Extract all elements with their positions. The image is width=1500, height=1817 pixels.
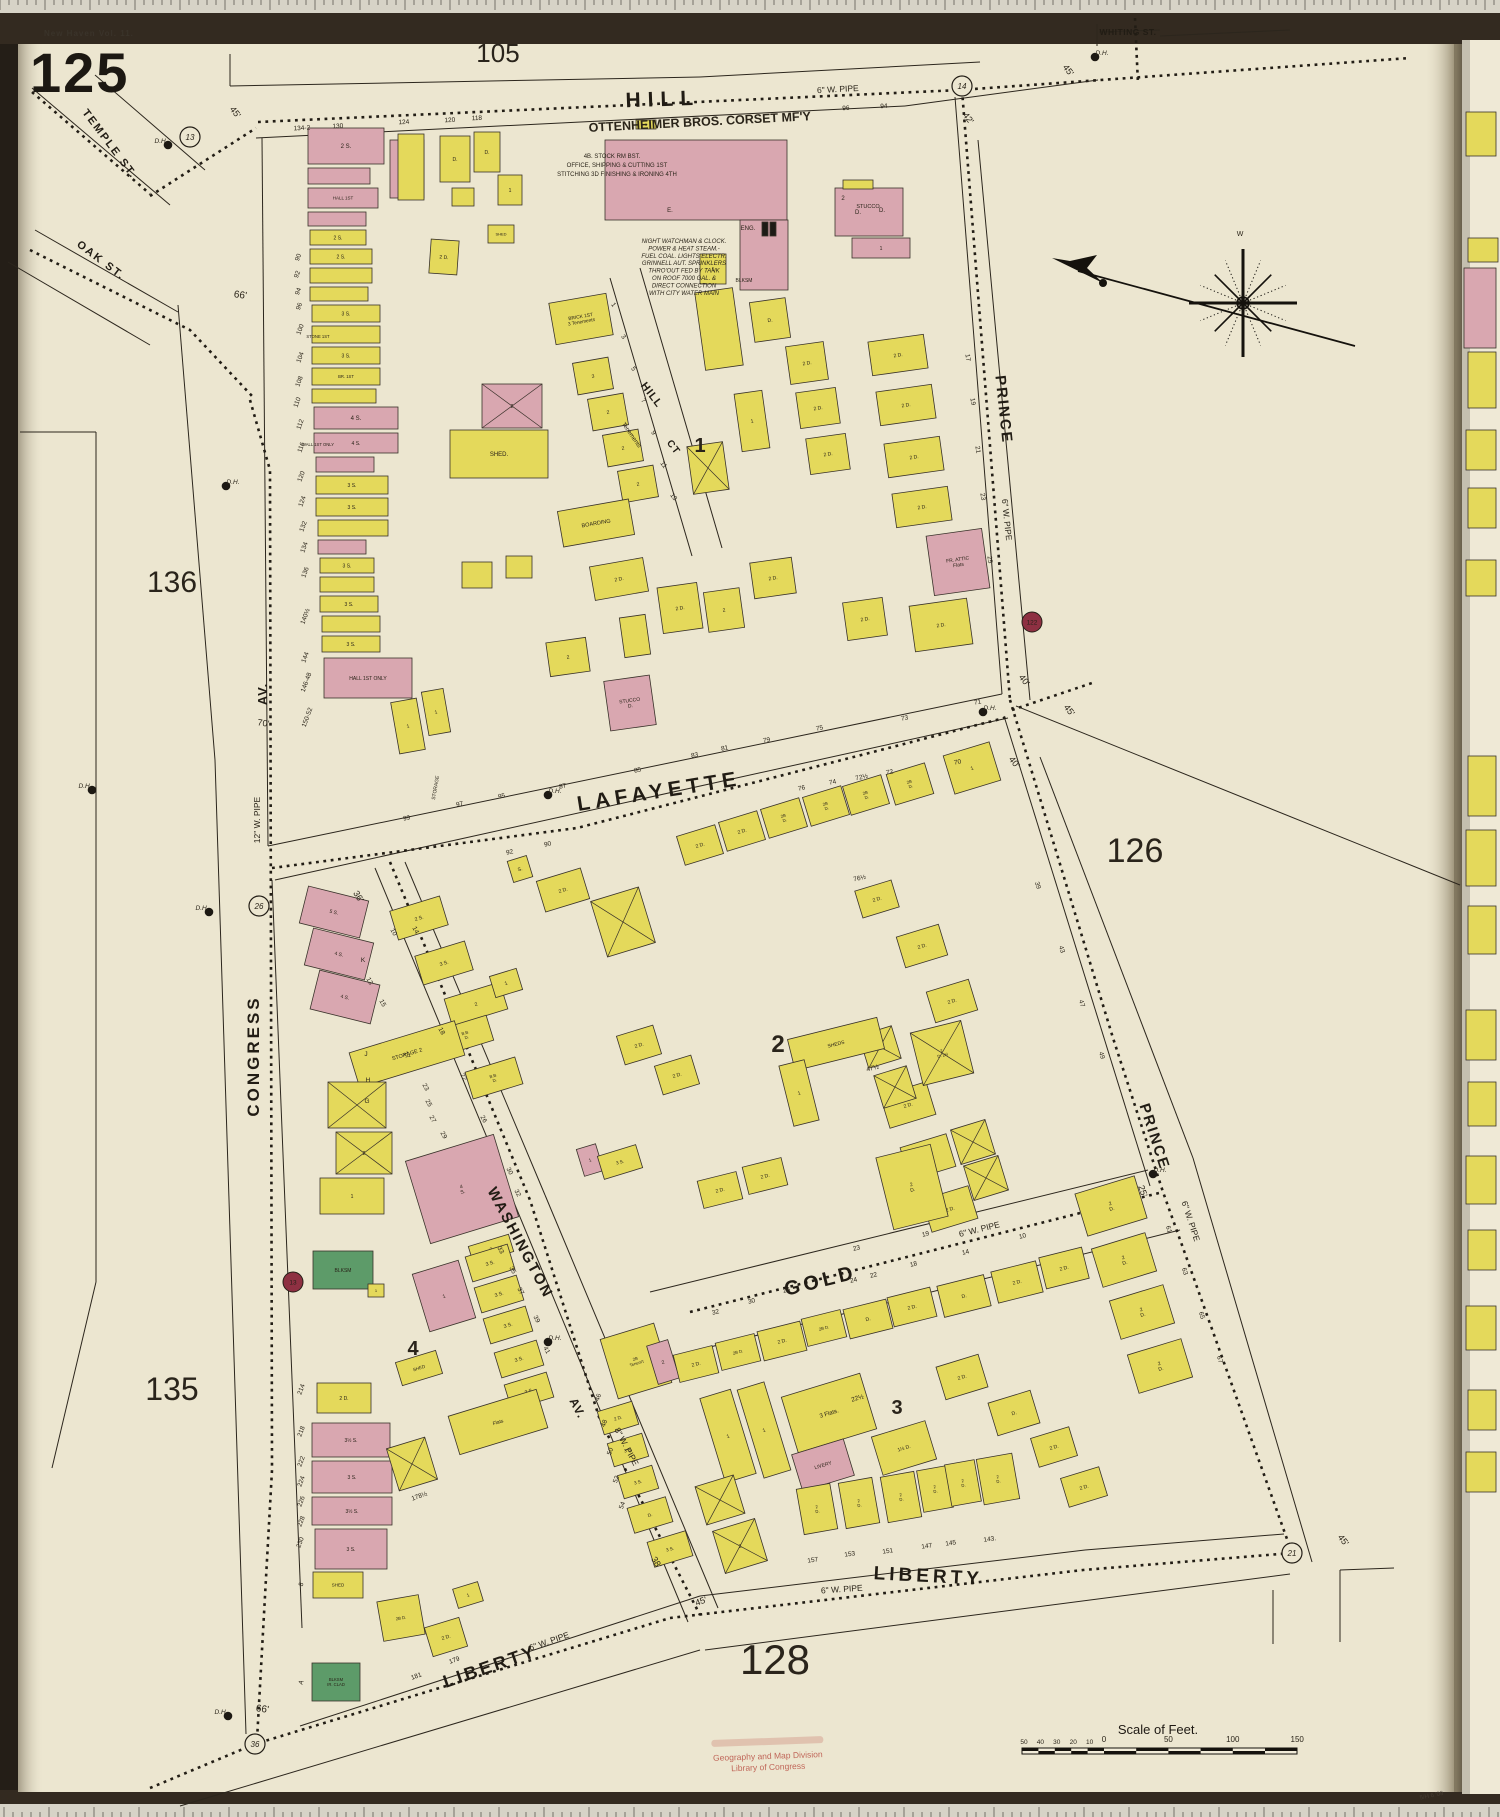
building: 3 S. — [320, 596, 378, 612]
building: 2 D. — [786, 342, 829, 385]
building-label: 2 D. — [823, 451, 833, 458]
building-footprint — [318, 540, 366, 554]
building: 3½ S. — [312, 1497, 392, 1525]
building — [770, 222, 776, 236]
factory-note-line: NIGHT WATCHMAN & CLOCK. — [642, 239, 727, 245]
building — [310, 287, 368, 301]
building-label: 3 S. — [342, 311, 351, 317]
building: 2 — [546, 637, 590, 676]
adjacent-sheet-number-105: 105 — [476, 38, 519, 68]
building-label: 2 S. — [334, 235, 343, 241]
map-annotation: WALL 1ST ONLY — [302, 442, 334, 447]
page-left-curl-shade — [18, 44, 44, 1792]
building: 2 D. — [892, 486, 952, 527]
building: D. — [440, 136, 470, 182]
double-hydrant-label: D.H. — [196, 905, 209, 912]
building-label: 2 D. — [901, 402, 911, 409]
building-label: HALL 1ST ONLY — [349, 676, 387, 682]
building-label: 1 — [509, 188, 512, 194]
building-label: 2 D. — [439, 254, 449, 261]
house-number: 96 — [842, 105, 850, 112]
building: 1 — [852, 238, 910, 258]
building: BLKSM — [313, 1251, 373, 1289]
building — [452, 188, 474, 206]
building: 2 — [482, 384, 542, 428]
scale-bar-segment — [1055, 1748, 1071, 1751]
building-label: 2 D. — [339, 1396, 348, 1402]
factory-note-line: POWER & HEAT STEAM.- — [648, 246, 720, 252]
scale-bar-segment — [1022, 1748, 1038, 1751]
building-label: 3 S. — [348, 505, 357, 511]
adjacent-page-building — [1468, 756, 1496, 816]
building-label: 4 S. — [351, 416, 362, 422]
scale-tick-label: 100 — [1226, 1735, 1240, 1744]
factory-note-line: GRINNELL AUT. SPRINKLERS — [642, 261, 726, 267]
building-label: 2 D. — [860, 616, 870, 623]
building-footprint — [310, 268, 372, 283]
street-label-av-: AV. — [255, 683, 270, 706]
scale-bar-segment — [1201, 1748, 1233, 1751]
book-edge-band — [0, 13, 1500, 44]
factory-note-line: DIRECT CONNECTION — [652, 283, 717, 289]
building-footprint — [398, 134, 424, 200]
building-label: 3½ S. — [345, 1508, 358, 1515]
building: D. — [749, 298, 790, 343]
alarm-circle-number: 26 — [254, 902, 264, 911]
building: SHED — [313, 1572, 363, 1598]
building-label: 2 D. — [893, 352, 903, 359]
building: HALL 1ST ONLY — [324, 658, 412, 698]
page-sheet-number: 125 — [30, 41, 129, 104]
double-hydrant-label: D.H. — [155, 138, 168, 145]
building: 2 S. — [310, 249, 372, 264]
building-footprint — [835, 188, 903, 236]
building-footprint — [310, 287, 368, 301]
building: 3 S. — [315, 1529, 387, 1569]
map-annotation: E. — [667, 208, 673, 214]
street-label-congress: CONGRESS — [244, 995, 263, 1116]
alarm-circle-number: 21 — [1287, 1549, 1297, 1558]
double-hydrant-label: D.H. — [79, 783, 92, 790]
book-photo: 2 S.HALL 1ST2 S.2 S.3 S.3 S.BR. 1ST4 S.4… — [0, 0, 1500, 1817]
building-label: 2 D. — [909, 454, 919, 461]
adjacent-page-building — [1466, 830, 1496, 886]
alarm-circle-number: 14 — [958, 82, 967, 91]
adjacent-page-building — [1466, 1452, 1496, 1492]
building: 2B D. — [377, 1595, 425, 1642]
building: 2 — [617, 465, 658, 503]
building-label: BR. 1ST — [338, 374, 354, 379]
house-number: 120 — [444, 117, 456, 125]
building-label: D. — [485, 150, 490, 156]
house-number: 130 — [332, 123, 344, 131]
compass-needle-ornament — [1099, 279, 1107, 287]
building-label: 2 D. — [813, 405, 823, 412]
scale-bar-segment — [1168, 1751, 1200, 1754]
building-label: SHED — [332, 1583, 345, 1588]
adjacent-page-building — [1468, 488, 1496, 528]
building-label: 3½ S. — [344, 1437, 357, 1444]
building — [506, 556, 532, 578]
map-annotation: OFFICE, SHIPPING & CUTTING 1ST — [567, 163, 668, 169]
sanborn-map-sheet: 2 S.HALL 1ST2 S.2 S.3 S.3 S.BR. 1ST4 S.4… — [0, 0, 1500, 1817]
building-label: BLKSMIR. CLAD — [327, 1677, 345, 1687]
scale-tick-label: 0 — [1102, 1735, 1107, 1744]
fire-alarm-box-circle: 26 — [249, 896, 269, 916]
volume-label: New Haven Vol. 11. — [44, 29, 134, 38]
fire-alarm-box-circle: 13 — [180, 127, 200, 147]
scale-tick-label: 50 — [1020, 1739, 1028, 1746]
building-label: 3 S. — [345, 602, 354, 608]
building — [308, 212, 366, 226]
building: 3 S. — [312, 347, 380, 364]
building — [318, 520, 388, 536]
double-hydrant-label: D.H. — [984, 705, 997, 712]
factory-note-line: FUEL COAL. LIGHTS ELECTR. — [641, 254, 726, 260]
building — [398, 134, 424, 200]
building: 2 D. — [796, 387, 841, 428]
building: SHED — [488, 225, 514, 243]
house-number: 134-2 — [293, 125, 310, 133]
building — [843, 180, 873, 189]
adjacent-page-building — [1466, 1010, 1496, 1060]
scale-bar-segment — [1071, 1751, 1087, 1754]
building — [605, 140, 787, 220]
street-label-hill: HILL — [625, 87, 700, 113]
building: FR. ATTICFlats — [926, 528, 990, 595]
building: 2 D. — [868, 334, 928, 375]
building: 2 — [336, 1132, 392, 1174]
building-label: 2 D. — [675, 605, 685, 612]
building: 2 D. — [909, 598, 973, 652]
building — [762, 222, 768, 236]
double-hydrant-label: D.H. — [227, 479, 240, 486]
building-footprint — [322, 616, 380, 632]
building: 1 — [320, 1178, 384, 1214]
compass-hub-dot — [1241, 301, 1245, 305]
building — [316, 457, 374, 472]
building: 2 S. — [308, 128, 384, 164]
building-footprint — [308, 168, 370, 184]
building — [308, 168, 370, 184]
building: 2 D. — [429, 239, 459, 275]
scale-tick-label: 150 — [1291, 1735, 1305, 1744]
scale-tick-label: 20 — [1070, 1739, 1078, 1746]
fire-alarm-box-circle: 21 — [1282, 1543, 1302, 1563]
building: 1 — [498, 175, 522, 205]
fire-alarm-box-circle: 14 — [952, 76, 972, 96]
scale-of-feet-label: Scale of Feet. — [1118, 1722, 1198, 1737]
building-footprint — [312, 389, 376, 403]
building: 2 D. — [843, 597, 888, 640]
scale-bar-segment — [1038, 1751, 1054, 1754]
adjacent-sheet-number-126: 126 — [1107, 832, 1164, 870]
fire-alarm-box-red: 13 — [283, 1272, 303, 1292]
building-label: 1 — [351, 1194, 354, 1200]
building: 4 S. — [314, 407, 398, 429]
building: 3 S. — [322, 636, 380, 652]
red-circle-number: 122 — [1027, 620, 1038, 627]
building-label: 3 S. — [342, 353, 351, 359]
building: HALL 1ST — [308, 188, 378, 208]
building: 2 D. — [317, 1383, 371, 1413]
building: 2 D. — [750, 557, 797, 598]
building — [312, 389, 376, 403]
scale-tick-label: 40 — [1037, 1739, 1045, 1746]
building: 2 S. — [310, 230, 366, 245]
building-footprint — [605, 140, 787, 220]
map-annotation: ENG. — [741, 226, 756, 232]
map-annotation: 12" W. PIPE — [252, 796, 262, 843]
building-footprint — [506, 556, 532, 578]
building-label: 2 D. — [936, 622, 946, 629]
building-label: 3 S. — [347, 642, 356, 648]
building-label: HALL 1ST — [333, 196, 354, 201]
building: 1 — [368, 1284, 384, 1297]
scale-tick-label: 10 — [1086, 1739, 1094, 1746]
map-annotation: STITCHING 3D FINISHING & IRONING 4TH — [557, 172, 677, 178]
building-footprint — [843, 180, 873, 189]
factory-note-line: ON ROOF 7000 GAL. & — [652, 276, 716, 282]
building: 3 S. — [316, 476, 388, 494]
building — [619, 614, 650, 657]
block-number-3: 3 — [891, 1397, 902, 1419]
building — [322, 616, 380, 632]
building-label: 2 — [511, 404, 514, 410]
map-annotation: 70' — [257, 717, 270, 729]
block-number-4: 4 — [407, 1338, 419, 1360]
house-number: G — [364, 1098, 369, 1105]
building-footprint — [320, 577, 374, 592]
adjacent-page-building — [1468, 352, 1496, 408]
adjacent-sheet-number-136: 136 — [147, 566, 197, 599]
building-label: 4 S. — [352, 441, 361, 447]
block-number-2: 2 — [771, 1031, 784, 1058]
building — [328, 1082, 386, 1128]
adjacent-page-building — [1466, 112, 1496, 156]
building: D. — [474, 132, 500, 172]
map-annotation: 66' — [233, 289, 248, 302]
building-label: 3 S. — [343, 563, 352, 569]
building-label: SHED. — [490, 452, 509, 458]
double-hydrant-label: D.H. — [215, 1709, 228, 1716]
building-label: 2 D. — [802, 360, 812, 367]
factory-note-line: THRO'OUT FED BY TANK — [648, 269, 720, 275]
map-annotation: BLKSM — [736, 278, 753, 284]
adjacent-page-building — [1466, 1156, 1496, 1204]
building-label: 1 — [880, 246, 883, 252]
building-label: SHED — [495, 231, 506, 236]
adjacent-sheet-number-128: 128 — [740, 1636, 810, 1683]
building: SHED. — [450, 430, 548, 478]
building — [835, 188, 903, 236]
alarm-circle-number: 13 — [186, 133, 195, 142]
building-footprint — [619, 614, 650, 657]
building: BR. 1ST — [312, 368, 380, 385]
adjacent-sheet-number-135: 135 — [145, 1371, 198, 1407]
building: 3 — [572, 357, 613, 395]
house-number: J — [364, 1051, 367, 1058]
map-annotation: STONE 1ST — [306, 334, 330, 339]
building: 2 D. — [657, 582, 703, 633]
double-hydrant-label: D.H. — [1096, 50, 1109, 57]
building: 2 — [703, 588, 744, 633]
building: 3½ S. — [312, 1423, 390, 1457]
building-label: D. — [767, 317, 773, 324]
building-footprint — [762, 222, 768, 236]
adjacent-page-building — [1464, 268, 1496, 348]
fire-alarm-box-circle: 36 — [245, 1734, 265, 1754]
building: 3 S. — [316, 498, 388, 516]
double-hydrant-label: D.H. — [549, 788, 562, 795]
adjacent-page-building — [1468, 1082, 1496, 1126]
adjacent-page-building — [1468, 238, 1498, 262]
building — [462, 562, 492, 588]
factory-note-line: WITH CITY WATER MAIN — [649, 291, 720, 297]
building: 3 S. — [312, 305, 380, 322]
compass-letter: W — [1237, 231, 1244, 238]
building-footprint — [462, 562, 492, 588]
red-circle-number: 13 — [289, 1280, 297, 1287]
building-label: 3 S. — [348, 1475, 357, 1481]
building-footprint — [308, 212, 366, 226]
book-gutter-shadow — [1424, 44, 1464, 1792]
street-label-whiting-st-: WHITING ST. — [1100, 27, 1157, 37]
building-label: BLKSM — [335, 1268, 352, 1274]
building: 2D. — [976, 1453, 1019, 1505]
adjacent-page-building — [1468, 1390, 1496, 1430]
adjacent-page-building — [1466, 1306, 1496, 1350]
scale-bar-segment — [1265, 1748, 1297, 1751]
adjacent-page-building — [1466, 430, 1496, 470]
adjacent-page-building — [1468, 1230, 1496, 1270]
building — [310, 268, 372, 283]
scale-bar-segment — [1104, 1751, 1136, 1754]
map-annotation: D. — [855, 210, 861, 216]
building: 2 D. — [876, 384, 936, 425]
building-label: D. — [453, 157, 458, 163]
building-label: 2 S. — [341, 144, 352, 150]
building: 2 D. — [884, 436, 944, 477]
adjacent-page-building — [1468, 906, 1496, 954]
scale-tick-label: 30 — [1053, 1739, 1061, 1746]
building-label: 2 D. — [768, 575, 778, 582]
building-label: 2 — [363, 1151, 366, 1157]
fire-alarm-box-red: 122 — [1022, 612, 1042, 632]
double-hydrant-label: D.H. — [549, 1335, 562, 1342]
building: BLKSMIR. CLAD — [312, 1663, 360, 1701]
scale-bar-segment — [1233, 1751, 1265, 1754]
building-label: 3 S. — [347, 1547, 356, 1553]
alarm-circle-number: 36 — [251, 1740, 260, 1749]
building-footprint — [770, 222, 776, 236]
scale-bar-segment — [1136, 1748, 1168, 1751]
building-label: 3 S. — [348, 483, 357, 489]
house-number: H — [366, 1077, 371, 1084]
scale-bar-segment — [1088, 1748, 1104, 1751]
building — [318, 540, 366, 554]
building: 3 S. — [320, 558, 374, 573]
building — [320, 577, 374, 592]
map-annotation: D. — [879, 208, 885, 214]
building — [687, 442, 729, 495]
bottom-ruler-strip — [0, 1804, 1500, 1817]
building: 2 D. — [806, 433, 851, 474]
building: 3 S. — [312, 1461, 392, 1493]
building-footprint — [318, 520, 388, 536]
house-number: 118 — [472, 115, 483, 123]
map-annotation: 66' — [255, 1703, 270, 1716]
house-number: K — [361, 957, 366, 964]
building-label: 2 D. — [917, 504, 927, 511]
building-footprint — [316, 457, 374, 472]
house-number: 124 — [398, 119, 410, 127]
double-hydrant-label: D.H. — [1154, 1167, 1167, 1174]
building-footprint — [452, 188, 474, 206]
adjacent-page-building — [1466, 560, 1496, 596]
building: STUCCOD. — [604, 675, 657, 731]
map-annotation: 4B. STOCK RM BST. — [584, 154, 641, 160]
block-number-1: 1 — [694, 435, 705, 457]
house-number: 94 — [880, 103, 888, 110]
building-label: 2 S. — [337, 254, 346, 260]
